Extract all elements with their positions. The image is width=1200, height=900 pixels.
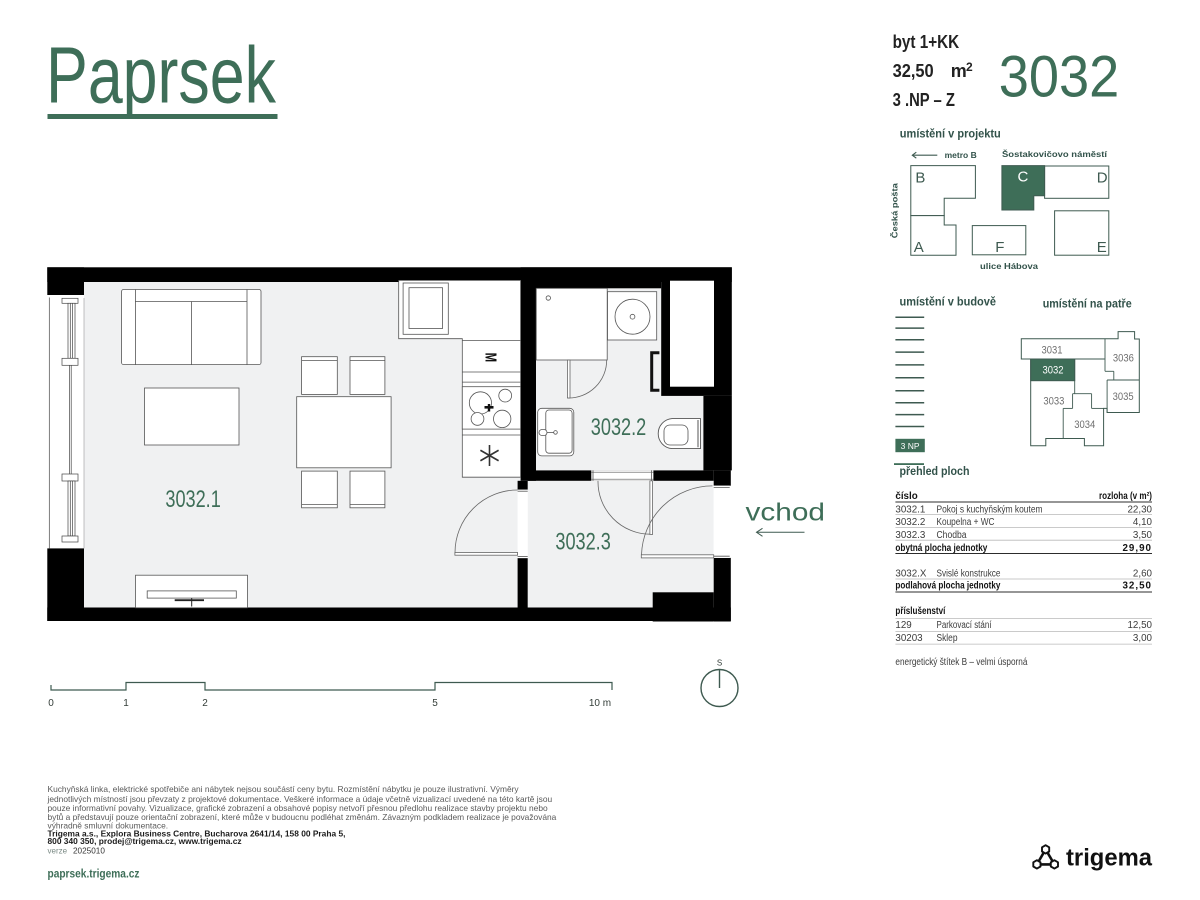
- svg-text:trigema: trigema: [1066, 845, 1153, 872]
- svg-text:3 NP: 3 NP: [901, 441, 920, 451]
- svg-text:rozloha (v m²): rozloha (v m²): [1099, 491, 1152, 502]
- svg-text:2,60: 2,60: [1133, 569, 1153, 580]
- svg-text:m: m: [951, 61, 967, 81]
- svg-text:verze: verze: [48, 846, 68, 855]
- svg-text:0: 0: [48, 698, 54, 709]
- svg-text:10 m: 10 m: [589, 698, 611, 709]
- svg-text:12,50: 12,50: [1127, 620, 1152, 631]
- svg-text:4,10: 4,10: [1133, 517, 1153, 528]
- svg-text:ulice Hábova: ulice Hábova: [980, 261, 1038, 271]
- svg-text:3036: 3036: [1113, 353, 1134, 365]
- svg-text:A: A: [914, 239, 924, 256]
- svg-text:Parkovací stání: Parkovací stání: [937, 620, 992, 631]
- svg-text:D: D: [1097, 169, 1108, 186]
- svg-text:podlahová plocha jednotky: podlahová plocha jednotky: [895, 581, 1000, 592]
- svg-text:3032.3: 3032.3: [895, 530, 926, 541]
- svg-text:Kuchyňská linka, elektrické sp: Kuchyňská linka, elektrické spotřebiče a…: [48, 784, 520, 794]
- svg-text:Paprsek: Paprsek: [46, 31, 277, 120]
- svg-text:3031: 3031: [1042, 345, 1063, 357]
- svg-text:2: 2: [202, 698, 208, 709]
- svg-text:3 .NP – Z: 3 .NP – Z: [893, 90, 955, 110]
- svg-text:příslušenství: příslušenství: [895, 606, 945, 617]
- svg-text:E: E: [1097, 239, 1107, 256]
- svg-text:3032.1: 3032.1: [895, 504, 925, 515]
- svg-text:32,50: 32,50: [893, 61, 934, 81]
- svg-text:3032.2: 3032.2: [895, 517, 925, 528]
- svg-text:metro B: metro B: [945, 150, 977, 160]
- svg-text:3032.X: 3032.X: [895, 569, 927, 580]
- svg-text:3034: 3034: [1074, 419, 1095, 431]
- svg-text:2: 2: [966, 60, 973, 74]
- svg-text:S: S: [717, 659, 722, 668]
- svg-text:3,50: 3,50: [1133, 530, 1153, 541]
- svg-text:3032.1: 3032.1: [165, 486, 220, 513]
- svg-text:umístění v projektu: umístění v projektu: [900, 127, 1001, 141]
- svg-text:Sklep: Sklep: [937, 633, 958, 644]
- svg-text:byt 1+KK: byt 1+KK: [893, 32, 960, 52]
- svg-text:3032.3: 3032.3: [555, 529, 610, 556]
- svg-text:3032: 3032: [999, 44, 1120, 109]
- svg-text:Pokoj s kuchyňským koutem: Pokoj s kuchyňským koutem: [937, 504, 1043, 515]
- svg-text:umístění v budově: umístění v budově: [900, 294, 997, 308]
- svg-text:M: M: [482, 353, 499, 363]
- svg-text:energetický štítek B – velmi ú: energetický štítek B – velmi úsporná: [895, 657, 1027, 668]
- svg-text:přehled ploch: přehled ploch: [900, 464, 970, 478]
- svg-text:3032.2: 3032.2: [591, 414, 646, 441]
- svg-text:F: F: [995, 239, 1004, 256]
- svg-text:obytná plocha jednotky: obytná plocha jednotky: [895, 543, 987, 554]
- svg-text:800 340 350, prodej@trigema.cz: 800 340 350, prodej@trigema.cz, www.trig…: [48, 836, 242, 846]
- svg-text:B: B: [915, 169, 925, 186]
- svg-text:129: 129: [895, 620, 911, 631]
- svg-text:vchod: vchod: [746, 499, 826, 527]
- svg-text:32,50: 32,50: [1122, 581, 1152, 592]
- svg-text:3033: 3033: [1043, 395, 1064, 407]
- svg-text:3,00: 3,00: [1133, 633, 1153, 644]
- svg-text:3032: 3032: [1043, 364, 1064, 376]
- svg-text:29,90: 29,90: [1122, 543, 1152, 554]
- svg-text:1: 1: [123, 698, 129, 709]
- svg-text:Šostakovičovo náměstí: Šostakovičovo náměstí: [1002, 148, 1108, 159]
- svg-text:5: 5: [432, 698, 438, 709]
- svg-text:Svislé konstrukce: Svislé konstrukce: [937, 569, 1001, 580]
- svg-text:30203: 30203: [895, 633, 923, 644]
- svg-text:Koupelna + WC: Koupelna + WC: [937, 517, 995, 528]
- svg-text:2025010: 2025010: [73, 846, 105, 855]
- svg-text:Chodba: Chodba: [937, 530, 967, 541]
- svg-text:číslo: číslo: [895, 491, 917, 502]
- svg-text:C: C: [1018, 168, 1029, 185]
- svg-text:umístění na patře: umístění na patře: [1043, 297, 1132, 311]
- svg-text:22,30: 22,30: [1127, 504, 1152, 515]
- svg-text:3035: 3035: [1113, 391, 1134, 403]
- svg-text:paprsek.trigema.cz: paprsek.trigema.cz: [48, 867, 140, 881]
- svg-text:Česká pošta: Česká pošta: [889, 183, 900, 238]
